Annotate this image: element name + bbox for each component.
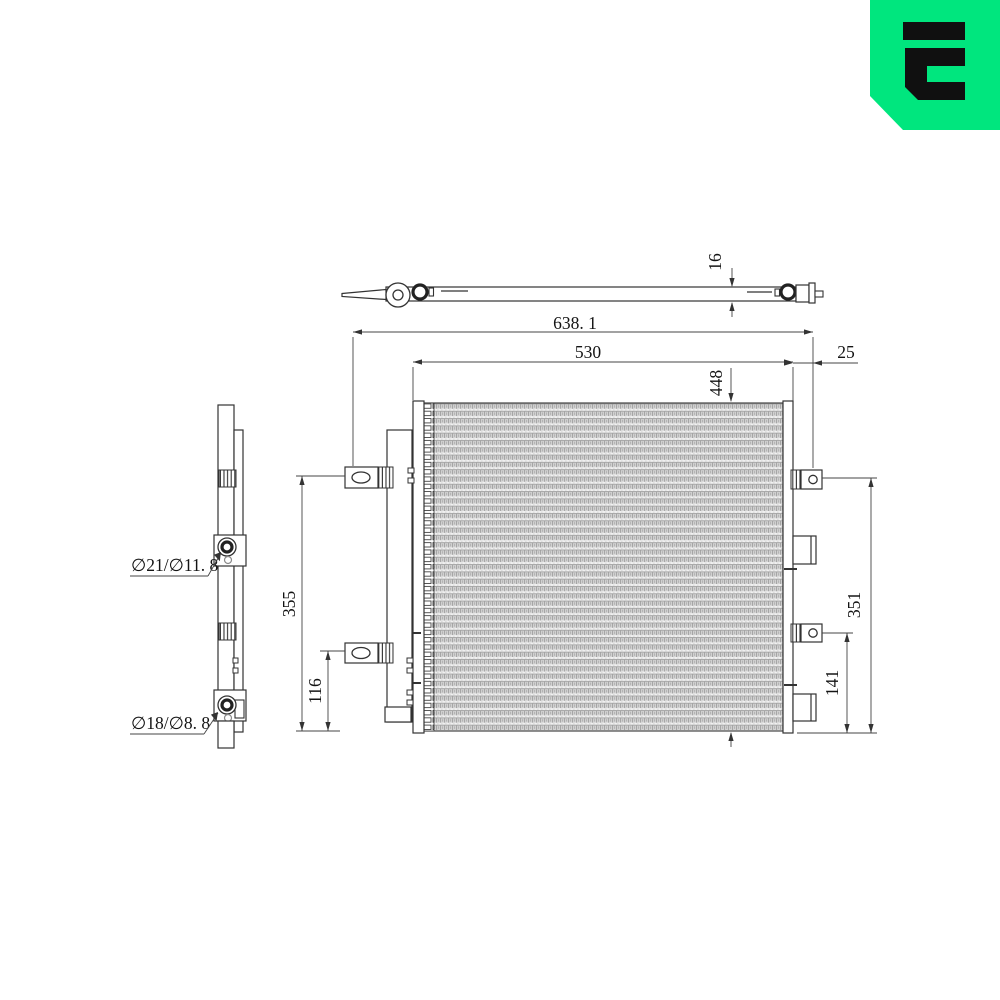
lower-port: [214, 690, 246, 722]
receiver-drier-hole: [393, 290, 403, 300]
upper-port: [214, 535, 246, 566]
right-port-ring: [781, 285, 795, 299]
right-lower-mount: [791, 624, 822, 642]
top-view: 16: [342, 253, 823, 317]
left-upper-mount: [345, 467, 393, 488]
top-view-body: [386, 287, 796, 301]
inlet-tube: [342, 290, 386, 300]
lower-port-label: ∅18/∅8. 8: [131, 713, 210, 733]
upper-port-label: ∅21/∅11. 8: [131, 555, 218, 575]
callout-upper-port: ∅21/∅11. 8: [130, 552, 221, 576]
left-bracket-foot: [385, 707, 411, 722]
dim-right-lower-mount: 141: [822, 633, 853, 733]
era-logo: [870, 0, 1000, 130]
drawing-page: 16: [0, 0, 1000, 1000]
core-tube-ends: [424, 403, 434, 731]
dim-core-width: 530: [413, 342, 793, 401]
dim-16-label: 16: [705, 253, 725, 271]
mount-hole: [809, 629, 817, 637]
mount-hole: [809, 475, 817, 483]
core-fins: [424, 403, 783, 731]
left-clip: [429, 288, 434, 296]
slot-hole: [352, 648, 370, 659]
connector-body: [796, 285, 809, 302]
right-clip: [775, 289, 780, 296]
side-lower-bracket: [219, 623, 236, 640]
connector-flange: [809, 283, 815, 303]
right-bottom-block: [793, 694, 816, 721]
dim-left-lower-mount: 116: [305, 651, 345, 731]
upper-port-bore: [222, 542, 232, 552]
side-foot: [218, 721, 234, 748]
side-upper-bracket: [219, 470, 236, 487]
dim-530-label: 530: [575, 342, 602, 362]
dim-116-label: 116: [305, 678, 325, 704]
lower-port-bore: [222, 700, 232, 710]
dim-thickness-16: 16: [705, 253, 735, 317]
dim-351-label: 351: [844, 592, 864, 618]
right-upper-mount: [791, 470, 822, 489]
dim-355-label: 355: [279, 591, 299, 618]
dim-141-label: 141: [822, 670, 842, 696]
dim-638-label: 638. 1: [553, 313, 597, 333]
logo-top-bar: [903, 22, 965, 40]
dim-25-label: 25: [837, 342, 855, 362]
front-view: [345, 401, 822, 733]
left-lower-mount: [345, 643, 393, 663]
callout-lower-port: ∅18/∅8. 8: [130, 712, 218, 734]
right-side-plate: [783, 401, 793, 733]
left-port-ring: [413, 285, 427, 299]
condenser-technical-drawing: 16: [0, 0, 1000, 1000]
right-middle-block: [793, 536, 816, 564]
dim-448-label: 448: [706, 370, 726, 397]
side-view: [214, 405, 246, 748]
connector-pin: [815, 291, 823, 297]
slot-hole: [352, 472, 370, 483]
dim-right-offset: 25: [784, 342, 858, 366]
